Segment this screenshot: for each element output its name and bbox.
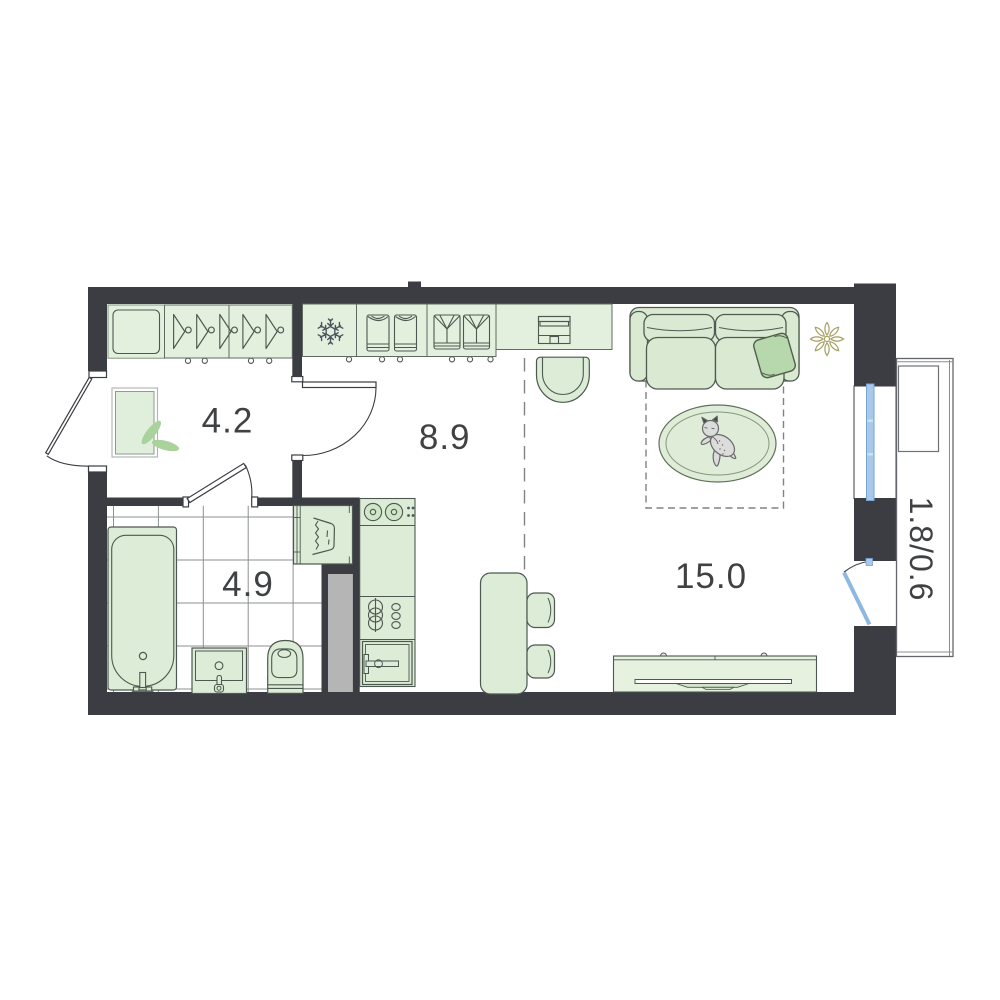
svg-text:15.0: 15.0 <box>675 557 747 596</box>
svg-text:1.8/0.6: 1.8/0.6 <box>903 497 939 602</box>
svg-text:8.9: 8.9 <box>419 418 471 457</box>
svg-text:4.9: 4.9 <box>222 565 274 604</box>
svg-text:4.2: 4.2 <box>202 402 254 441</box>
